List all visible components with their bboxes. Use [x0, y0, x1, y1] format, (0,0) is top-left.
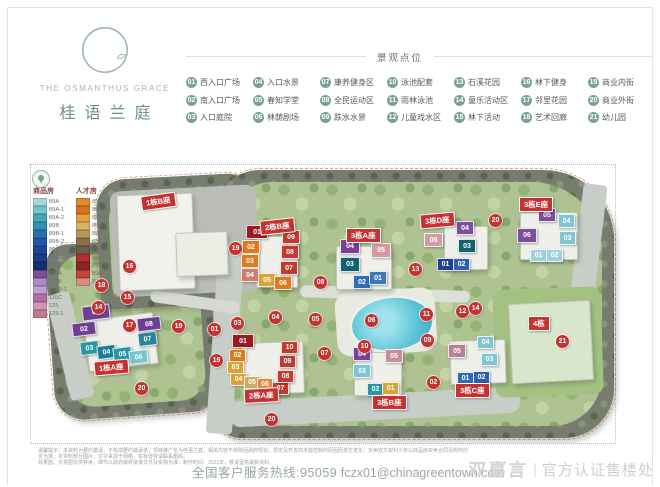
landscape-marker: 08: [314, 276, 327, 289]
landscape-marker: 21: [556, 335, 569, 348]
color-swatch: [76, 222, 90, 230]
unit-type-label: 89A-1: [49, 207, 64, 213]
unit-type-label: 85A-1: [92, 199, 107, 205]
legend-item-label: 林下健身: [535, 77, 567, 88]
unit-type-label: 115A: [49, 271, 62, 277]
unit-type-label: 89B-1: [49, 231, 64, 237]
service-hotline: 全国客户服务热线:95059 fczx01@chinagreentown.com: [192, 462, 505, 481]
legend-item-label: 春知学堂: [267, 95, 299, 106]
legend-item: 06 林荫剧场: [253, 112, 320, 123]
legend-item: 20 商业外街: [588, 95, 655, 106]
legend-item-label: 幼儿园: [602, 112, 626, 123]
legend-title: 景观点位: [372, 50, 428, 64]
unit-block: 08: [281, 245, 299, 259]
legend-item-label: 艺术回廊: [535, 112, 567, 123]
legend-item-label: 全民运动区: [334, 95, 374, 106]
unit-type-label: 85A-2: [92, 207, 107, 213]
unit-block: 07: [280, 261, 298, 275]
housing-swatch-row: 89A-2: [33, 214, 68, 222]
building-banner: 2栋A座: [244, 387, 279, 404]
legend-number-badge: 16: [521, 77, 532, 88]
color-swatch: [33, 238, 47, 246]
disclaimer-line-1: 温馨提示：本资料为要约邀请，不构成要约或承诺；项目推广名为桂语兰庭，相关内容不排…: [38, 448, 468, 460]
legend-item-label: 商业内街: [602, 77, 634, 88]
housing-swatch-row: 85C-1: [76, 238, 108, 246]
unit-block: 02: [71, 321, 97, 338]
housing-swatch-row: 115B: [33, 278, 68, 286]
legend-item-label: 儿童戏水区: [401, 112, 441, 123]
talent-housing-column: 人才房 85A-1 85A-2 85A-3 85A-4: [76, 186, 108, 318]
color-swatch: [33, 230, 47, 238]
landscape-marker: 07: [318, 347, 331, 360]
legend-item-label: 入口水景: [267, 77, 299, 88]
color-swatch: [33, 294, 47, 302]
watermark-divider: |: [533, 461, 537, 478]
housing-swatch-row: 125: [33, 302, 68, 310]
unit-type-label: 129-1: [49, 311, 64, 317]
landscape-marker: 02: [427, 376, 440, 389]
unit-type-label: 85B: [92, 231, 102, 237]
unit-type-label: 89E: [49, 263, 59, 269]
tree-icon: [36, 174, 46, 184]
legend-number-badge: 17: [521, 95, 532, 106]
landscape-marker: 17: [123, 319, 136, 332]
unit-type-label: 125: [49, 303, 59, 309]
unit-block: 05: [371, 243, 391, 258]
unit-block: 02: [453, 258, 470, 271]
unit-block: 03: [340, 257, 360, 272]
landscape-legend: 01 西入口广场 02 南入口广场 03 入口庭院 04 入口水景 05 春知学…: [186, 74, 655, 127]
unit-type-label: 89A: [92, 271, 102, 277]
unit-type-label: 89C: [49, 247, 59, 253]
legend-item-label: 童乐活动区: [468, 95, 508, 106]
housing-swatch-row: 85A-1: [76, 198, 108, 206]
legend-item-label: 泳池配套: [401, 77, 433, 88]
color-swatch: [76, 270, 90, 278]
building-footprint: [508, 300, 594, 384]
legend-item: 14 童乐活动区: [454, 95, 521, 106]
legend-number-badge: 13: [454, 77, 465, 88]
landscape-marker: 12: [456, 305, 469, 318]
watermark-caption: 官方认证售楼处: [542, 459, 654, 480]
unit-type-label: 85C-2: [92, 247, 108, 253]
landscape-marker: 14: [469, 302, 482, 315]
legend-item: 03 入口庭院: [186, 112, 253, 123]
unit-block: 08: [136, 316, 162, 333]
landscape-marker: 20: [265, 413, 278, 426]
building-banner: 3栋C座: [455, 383, 490, 398]
building-banner: 3栋B座: [372, 395, 407, 410]
unit-block: 06: [274, 276, 292, 290]
unit-block: 02: [546, 249, 563, 262]
landscape-marker: 15: [121, 291, 134, 304]
unit-block: 06: [517, 228, 537, 243]
landscape-marker: 11: [420, 308, 433, 321]
housing-swatch-row: 85C-2: [76, 246, 108, 254]
color-swatch: [33, 214, 47, 222]
legend-number-badge: 04: [253, 77, 264, 88]
unit-block: 08: [277, 370, 294, 383]
unit-block: 03: [353, 364, 371, 378]
legend-item: 18 艺术回廊: [521, 112, 588, 123]
legend-item: 11 雨林泳池: [387, 95, 454, 106]
legend-number-badge: 21: [588, 112, 599, 123]
landscape-marker: 01: [208, 323, 221, 336]
legend-item: 02 南入口广场: [186, 95, 253, 106]
landscape-marker: 14: [92, 301, 105, 314]
legend-number-badge: 20: [588, 95, 599, 106]
unit-block: 01: [232, 334, 254, 348]
legend-number-badge: 09: [320, 112, 331, 123]
legend-number-badge: 02: [186, 95, 197, 106]
legend-item-label: 邻里花园: [535, 95, 567, 106]
landscape-marker: 04: [269, 311, 282, 324]
legend-item-label: 林荫剧场: [267, 112, 299, 123]
unit-type-label: 89B: [92, 255, 102, 261]
housing-swatch-row: 85B: [76, 230, 108, 238]
site-plan-poster: THE OSMANTHUS GRACE 桂语兰庭 景观点位 01 西入口广场 0…: [0, 0, 660, 487]
housing-swatch-row: 129-1: [33, 310, 68, 318]
hotline-label: 全国客户服务热线:95059: [192, 466, 337, 480]
housing-swatch-row: 85A-3: [76, 214, 108, 222]
unit-type-label: 115C: [49, 295, 62, 301]
landscape-marker: 09: [421, 334, 434, 347]
unit-block: 04: [456, 221, 474, 235]
unit-block: 07: [137, 331, 158, 347]
color-swatch: [33, 278, 47, 286]
unit-block: 05: [424, 233, 443, 247]
landscape-marker: 06: [365, 314, 378, 327]
unit-block: 01: [369, 271, 387, 285]
legend-item: 01 西入口广场: [186, 77, 253, 88]
color-swatch: [33, 254, 47, 262]
legend-item: 16 林下健身: [521, 77, 588, 88]
building-banner: 3栋A座: [346, 228, 381, 243]
brand-logo: THE OSMANTHUS GRACE 桂语兰庭: [38, 22, 172, 123]
unit-block: 04: [241, 268, 259, 282]
legend-item-label: 南入口广场: [200, 95, 240, 106]
unit-type-label: 89B-1: [92, 263, 107, 269]
commodity-swatch-list: 89A 89A-1 89A-2 89B 89B-1: [33, 198, 68, 318]
legend-divider-right: [434, 56, 652, 57]
color-swatch: [33, 302, 47, 310]
unit-block: 04: [558, 214, 575, 228]
unit-block: 03: [559, 231, 576, 245]
unit-block: 03: [458, 239, 476, 253]
housing-swatch-row: 89A: [76, 270, 108, 278]
color-swatch: [33, 246, 47, 254]
housing-swatch-row: 89B-2: [33, 238, 68, 246]
unit-type-label: 85A-4: [92, 223, 107, 229]
legend-number-badge: 03: [186, 112, 197, 123]
housing-swatch-row: 89C: [33, 246, 68, 254]
building-banner: 1栋A座: [93, 359, 129, 377]
color-swatch: [76, 254, 90, 262]
unit-block: 05: [385, 349, 403, 363]
landscape-marker: 13: [409, 263, 422, 276]
color-swatch: [33, 206, 47, 214]
legend-item-label: 跌水水景: [334, 112, 366, 123]
legend-item: 07 康养健身区: [320, 77, 387, 88]
housing-swatch-row: 115C: [33, 294, 68, 302]
legend-item-label: 西入口广场: [200, 77, 240, 88]
housing-swatch-row: 115B-1: [33, 286, 68, 294]
legend-item: 08 全民运动区: [320, 95, 387, 106]
color-swatch: [76, 246, 90, 254]
color-swatch: [33, 222, 47, 230]
landscape-marker: 05: [309, 313, 322, 326]
legend-item: 04 入口水景: [253, 77, 320, 88]
housing-swatch-row: 89B: [33, 222, 68, 230]
legend-number-badge: 08: [320, 95, 331, 106]
unit-type-label: 89B: [49, 223, 59, 229]
unit-block: 01: [437, 258, 454, 271]
legend-number-badge: 10: [387, 77, 398, 88]
legend-item-label: 商业外街: [602, 95, 634, 106]
legend-item-label: 石溪花园: [468, 77, 500, 88]
legend-number-badge: 05: [253, 95, 264, 106]
commodity-housing-title: 商品房: [33, 186, 68, 196]
watermark-logo-text: 双嘉言: [467, 456, 530, 482]
brand-name-en: THE OSMANTHUS GRACE: [38, 84, 172, 93]
color-swatch: [76, 238, 90, 246]
unit-block: 02: [242, 240, 260, 254]
building-banner: 3栋E座: [519, 197, 553, 212]
legend-number-badge: 12: [387, 112, 398, 123]
legend-number-badge: 15: [454, 112, 465, 123]
landscape-marker: 10: [358, 340, 371, 353]
legend-item: 05 春知学堂: [253, 95, 320, 106]
housing-swatch-row: 89C-1: [33, 254, 68, 262]
unit-block: 03: [481, 353, 498, 366]
housing-swatch-row: 85A-2: [76, 206, 108, 214]
housing-swatch-row: 89E: [33, 262, 68, 270]
landscape-marker: 16: [123, 260, 136, 273]
housing-swatch-row: 89B-1: [33, 230, 68, 238]
unit-block: 01: [530, 249, 547, 262]
legend-number-badge: 18: [521, 112, 532, 123]
unit-block: 03: [241, 254, 259, 268]
unit-block: 09: [279, 355, 296, 368]
unit-block: 06: [128, 349, 149, 365]
legend-item-label: 入口庭院: [200, 112, 232, 123]
color-swatch: [76, 214, 90, 222]
unit-type-label: 89A-2: [49, 215, 64, 221]
landscape-marker: 19: [229, 242, 242, 255]
color-swatch: [33, 262, 47, 270]
legend-number-badge: 06: [253, 112, 264, 123]
building-footprint: [175, 231, 229, 277]
legend-number-badge: 14: [454, 95, 465, 106]
unit-block: 10: [281, 341, 298, 354]
housing-swatch-row: 89B: [76, 254, 108, 262]
legend-item: 10 泳池配套: [387, 77, 454, 88]
legend-item: 15 林下活动: [454, 112, 521, 123]
building-banner: 3栋D座: [419, 212, 455, 230]
legend-item-label: 雨林泳池: [401, 95, 433, 106]
housing-swatch-row: 115A: [33, 270, 68, 278]
unit-block: 01: [382, 382, 399, 395]
landscape-marker: 20: [135, 382, 148, 395]
unit-type-label: 85C-1: [92, 239, 108, 245]
legend-item: 13 石溪花园: [454, 77, 521, 88]
unit-type-label: 115B-1: [49, 287, 67, 293]
housing-swatch-row: 89A: [33, 198, 68, 206]
unit-block: 05: [448, 344, 466, 358]
legend-number-badge: 07: [320, 77, 331, 88]
legend-item-label: 康养健身区: [334, 77, 374, 88]
color-swatch: [76, 230, 90, 238]
legend-item: 12 儿童戏水区: [387, 112, 454, 123]
legend-number-badge: 01: [186, 77, 197, 88]
legend-number-badge: 19: [588, 77, 599, 88]
osmanthus-circle-icon: [76, 22, 134, 80]
color-swatch: [33, 286, 47, 294]
legend-item: 17 邻里花园: [521, 95, 588, 106]
legend-item: 21 幼儿园: [588, 112, 655, 123]
color-swatch: [76, 206, 90, 214]
landscape-marker: 20: [489, 214, 502, 227]
color-swatch: [33, 270, 47, 278]
legend-divider-left: [186, 56, 366, 57]
unit-type-label: 115B: [49, 279, 62, 285]
unit-type-label: 89B-2: [49, 239, 64, 245]
landscape-marker: 19: [210, 354, 223, 367]
landscape-marker: 18: [95, 279, 108, 292]
housing-type-legend: 商品房 89A 89A-1 89A-2 89B: [33, 186, 108, 318]
commodity-housing-column: 商品房 89A 89A-1 89A-2 89B: [33, 186, 68, 318]
housing-swatch-row: 89A-1: [33, 206, 68, 214]
color-swatch: [76, 198, 90, 206]
color-swatch: [33, 198, 47, 206]
color-swatch: [76, 278, 90, 286]
legend-number-badge: 11: [387, 95, 398, 106]
color-swatch: [76, 262, 90, 270]
talent-housing-title: 人才房: [76, 186, 108, 196]
landscape-marker: 03: [231, 317, 244, 330]
housing-swatch-row: 85A-4: [76, 222, 108, 230]
unit-type-label: 89A: [49, 199, 59, 205]
brand-name-cn: 桂语兰庭: [38, 99, 172, 123]
housing-swatch-row: 89B-1: [76, 262, 108, 270]
legend-item: 19 商业内街: [588, 77, 655, 88]
unit-block: 04: [477, 336, 494, 349]
building-banner: 4栋: [528, 316, 550, 331]
unit-type-label: 89C-1: [49, 255, 65, 261]
landscape-marker: 19: [172, 320, 185, 333]
legend-item-label: 林下活动: [468, 112, 500, 123]
platform-watermark: 双嘉言 | 官方认证售楼处: [468, 456, 654, 482]
talent-swatch-list: 85A-1 85A-2 85A-3 85A-4 85B: [76, 198, 108, 286]
legend-item: 09 跌水水景: [320, 112, 387, 123]
unit-type-label: 85A-3: [92, 215, 107, 221]
color-swatch: [33, 310, 47, 318]
